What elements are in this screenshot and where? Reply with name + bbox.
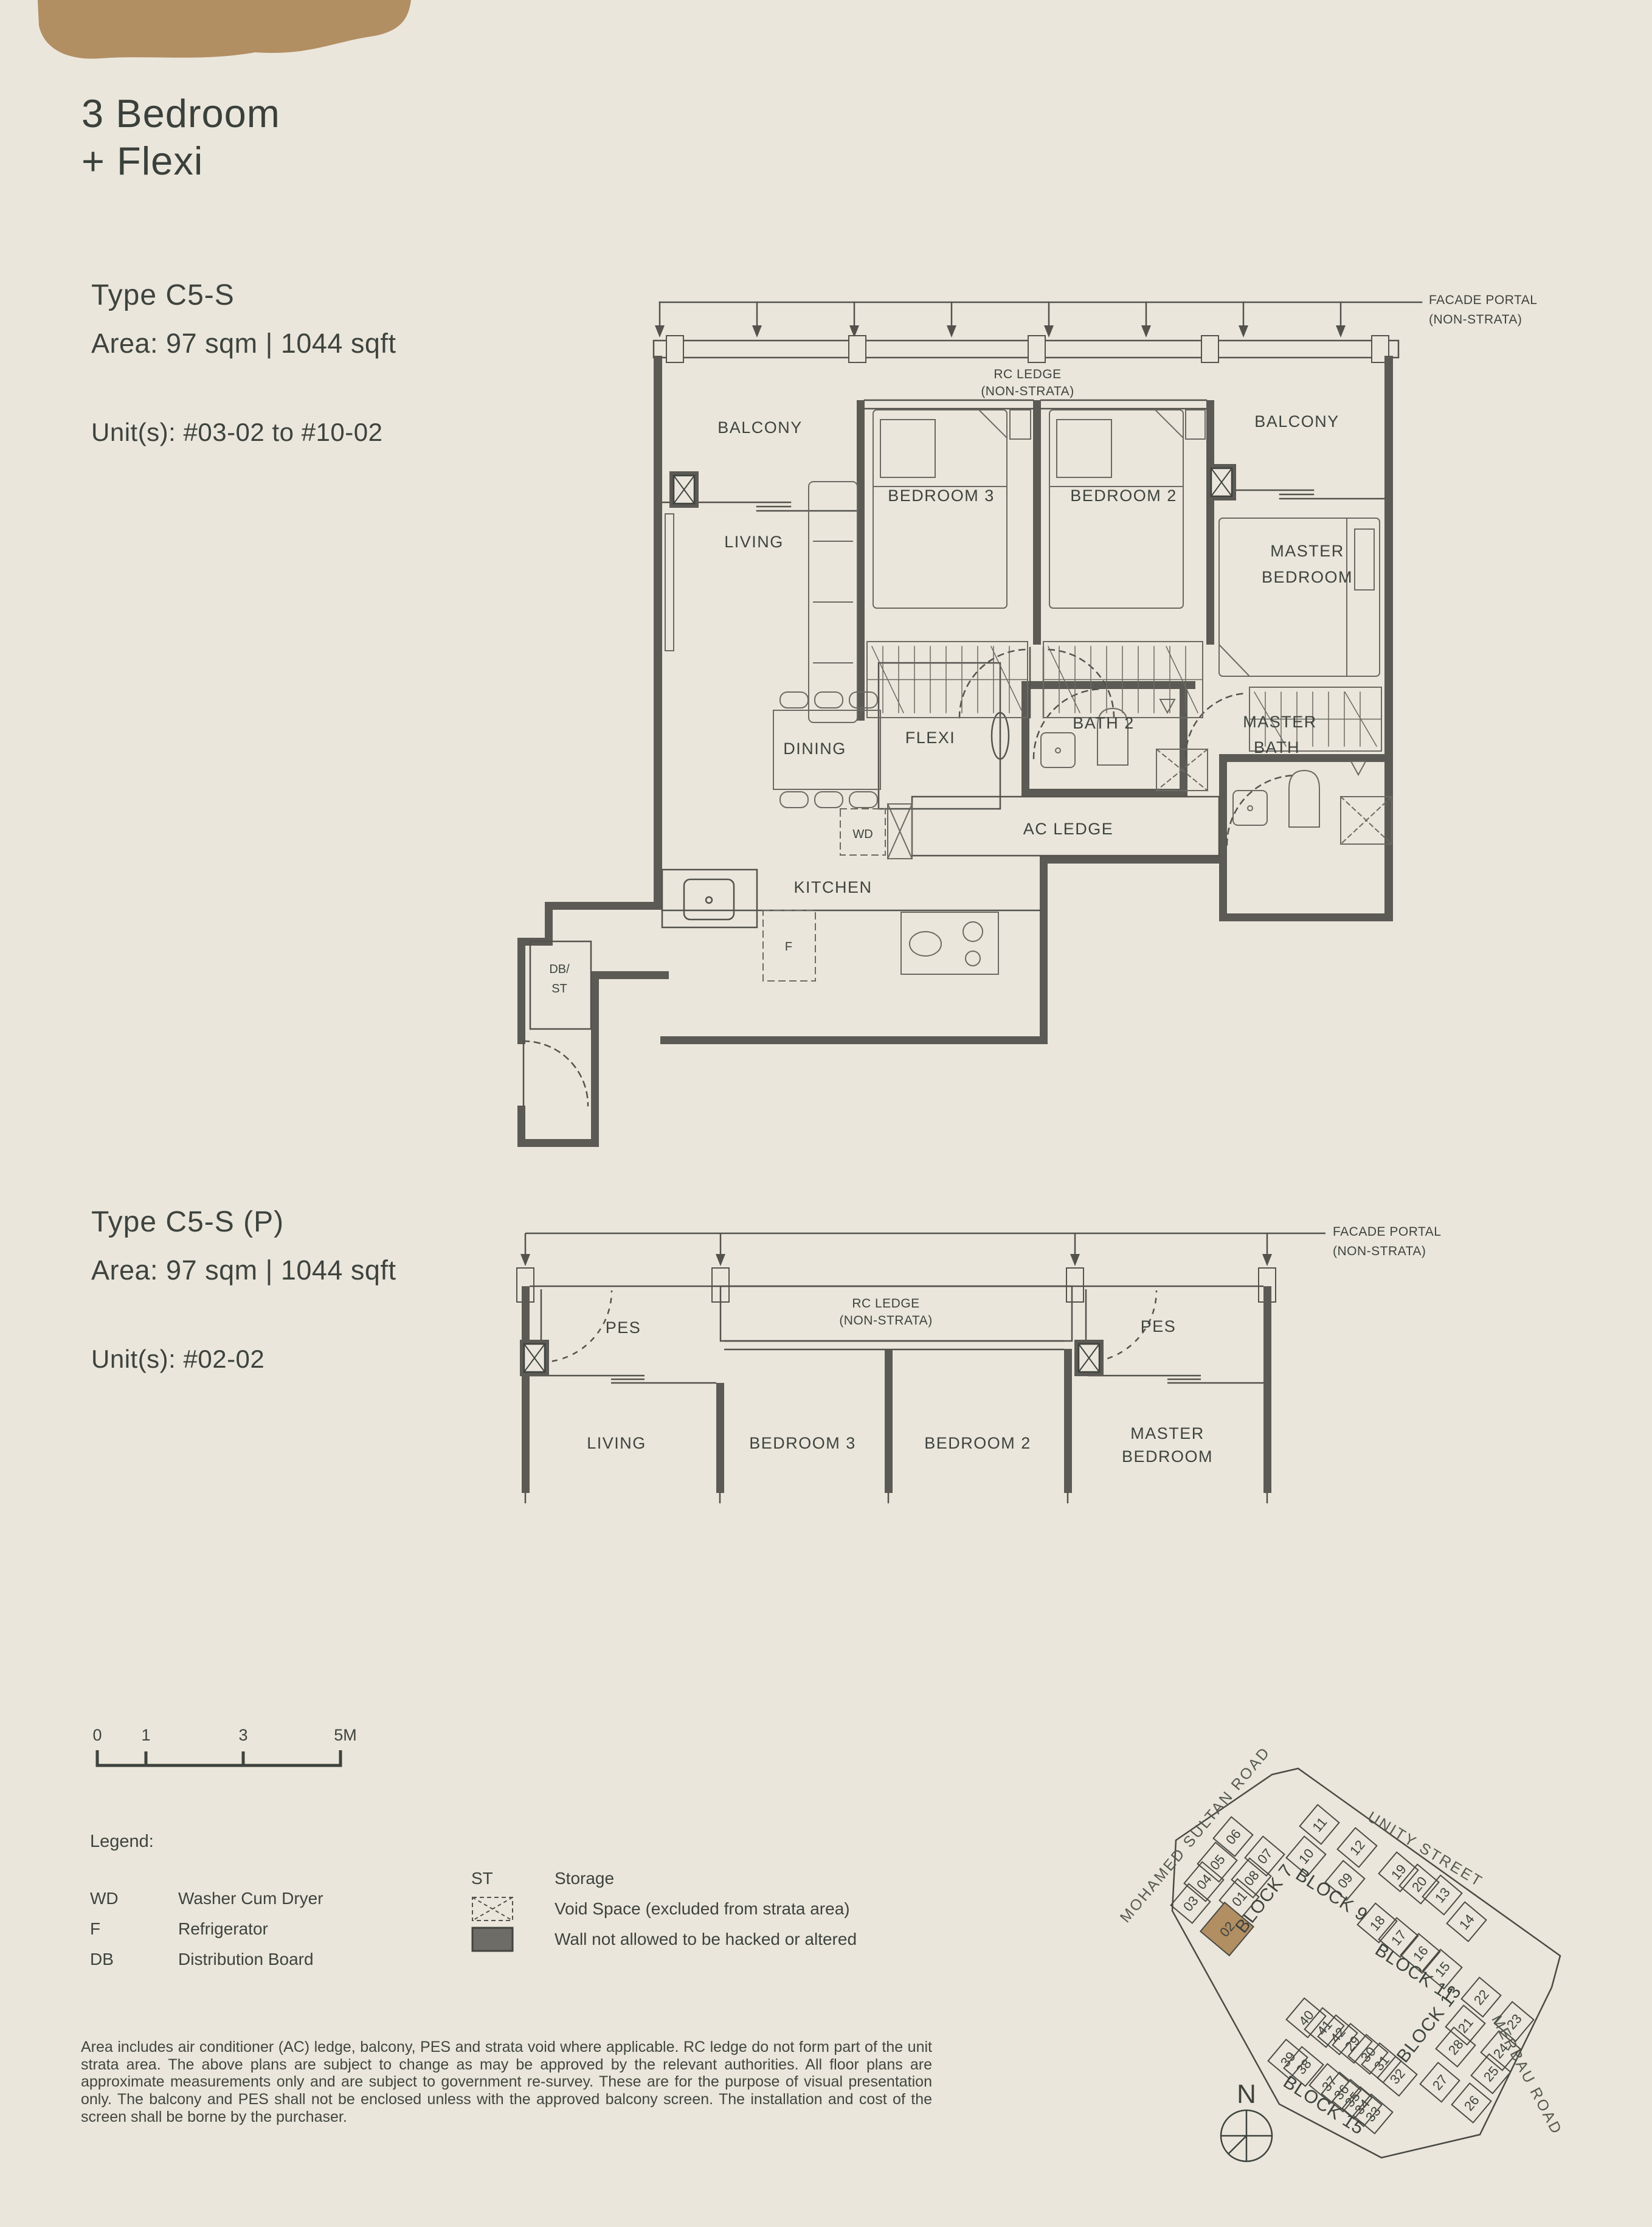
- plan1-rc-ledge-label2: (NON-STRATA): [981, 384, 1074, 398]
- plan2-room-labels: RC LEDGE (NON-STRATA) PES PES LIVING BED…: [587, 1297, 1213, 1466]
- label-st: ST: [551, 982, 567, 996]
- room-label-flexi: FLEXI: [905, 729, 956, 747]
- site-unit-number: 18: [1367, 1913, 1388, 1934]
- site-unit-number: 14: [1456, 1911, 1477, 1933]
- plan2-facade-portal-label: FACADE PORTAL: [1333, 1225, 1441, 1239]
- plan2-heading: Type C5-S (P): [91, 1205, 396, 1239]
- legend-desc-void: Void Space (excluded from strata area): [555, 1899, 850, 1919]
- facade-portal-arrows: [520, 1233, 1272, 1266]
- legend-row-wall: Wall not allowed to be hacked or altered: [471, 1924, 857, 1955]
- legend-desc-db: Distribution Board: [178, 1950, 314, 1969]
- floorplan-brochure-page: { "page": { "title_line1": "3 Bedroom", …: [0, 0, 1652, 2227]
- plan1-rc-ledge-label: RC LEDGE: [994, 367, 1061, 381]
- site-unit-number: 03: [1180, 1893, 1201, 1914]
- site-unit-number: 21: [1455, 2015, 1476, 2036]
- legend-desc-f: Refrigerator: [178, 1919, 268, 1939]
- legend-abbr-st: ST: [471, 1869, 555, 1888]
- bath2-fixtures: [1041, 699, 1175, 767]
- tv-console-icon: [665, 514, 674, 651]
- restricted-wall-symbol: [471, 1927, 514, 1952]
- plan2-info: Type C5-S (P) Area: 97 sqm | 1044 sqft U…: [91, 1205, 396, 1374]
- plan1-heading: Type C5-S: [91, 279, 396, 312]
- room-label-pes-left: PES: [606, 1318, 641, 1337]
- legend-desc-wd: Washer Cum Dryer: [178, 1889, 323, 1908]
- page-title: 3 Bedroom + Flexi: [81, 90, 280, 185]
- room-label-master-bath2: BATH: [1254, 738, 1300, 757]
- disclaimer-text: Area includes air conditioner (AC) ledge…: [81, 2038, 932, 2125]
- plan2-units: Unit(s): #02-02: [91, 1345, 396, 1374]
- site-map-road-labels: MOHAMED SULTAN ROADUNITY STREETMERBAU RO…: [1117, 1744, 1566, 2138]
- plan1-area: Area: 97 sqm | 1044 sqft: [91, 328, 396, 359]
- floor-plan-2: FACADE PORTAL (NON-STRATA): [517, 1225, 1441, 1503]
- side-table-icon: [1186, 410, 1205, 439]
- plan2-rc-ledge-label2: (NON-STRATA): [839, 1314, 932, 1328]
- plan2-rc-ledge-label: RC LEDGE: [852, 1297, 919, 1311]
- room-label-living-p2: LIVING: [587, 1434, 646, 1452]
- site-unit-number: 04: [1194, 1871, 1215, 1893]
- plan2-area: Area: 97 sqm | 1044 sqft: [91, 1255, 396, 1286]
- room-label-pes-right: PES: [1141, 1317, 1177, 1335]
- site-unit-number: 05: [1207, 1852, 1228, 1873]
- site-unit-number: 08: [1241, 1868, 1262, 1889]
- site-road-label: UNITY STREET: [1364, 1808, 1486, 1890]
- scale-tick-0: 0: [92, 1726, 102, 1744]
- scale-tick-3: 3: [238, 1726, 247, 1744]
- master-bath-fixtures: [1233, 761, 1366, 827]
- brush-stroke-decoration: [38, 0, 411, 59]
- legend: Legend: WD Washer Cum Dryer F Refrigerat…: [90, 1832, 323, 1975]
- room-label-master-bedroom: MASTER: [1270, 542, 1344, 560]
- site-unit-27: 27: [1420, 2063, 1460, 2102]
- plan2-facade-portal-label2: (NON-STRATA): [1333, 1244, 1426, 1258]
- page-title-line2: + Flexi: [81, 137, 280, 185]
- legend-row-db: DB Distribution Board: [90, 1944, 323, 1975]
- room-label-bath2: BATH 2: [1073, 714, 1135, 732]
- site-unit-number: 19: [1388, 1862, 1409, 1883]
- legend-abbr-db: DB: [90, 1950, 178, 1969]
- legend-row-wd: WD Washer Cum Dryer: [90, 1883, 323, 1914]
- site-unit-26: 26: [1452, 2083, 1491, 2123]
- room-label-living: LIVING: [724, 533, 784, 551]
- plan1-info: Type C5-S Area: 97 sqm | 1044 sqft Unit(…: [91, 279, 396, 447]
- label-f: F: [785, 940, 792, 954]
- scale-tick-5m: 5M: [334, 1726, 357, 1744]
- site-map: 0102030405060708091011121314151617181920…: [1117, 1744, 1566, 2161]
- site-unit-number: 32: [1387, 2066, 1408, 2087]
- label-wd: WD: [852, 828, 873, 841]
- ac-unit-boxes: [520, 1340, 1104, 1376]
- room-label-master-bath: MASTER: [1243, 713, 1317, 731]
- plan1-units: Unit(s): #03-02 to #10-02: [91, 418, 396, 447]
- site-unit-14: 14: [1447, 1902, 1487, 1942]
- site-unit-number: 28: [1445, 2037, 1467, 2058]
- room-label-bedroom3: BEDROOM 3: [888, 487, 995, 505]
- legend-column-2: ST Storage Void Space (excluded from str…: [471, 1863, 857, 1955]
- site-unit-number: 06: [1223, 1826, 1244, 1848]
- room-label-kitchen: KITCHEN: [793, 878, 872, 896]
- room-label-bedroom2-p2: BEDROOM 2: [924, 1434, 1031, 1452]
- room-label-master2-p2: BEDROOM: [1122, 1447, 1213, 1466]
- room-label-dining: DINING: [783, 739, 846, 758]
- site-map-units: 0102030405060708091011121314151617181920…: [1171, 1805, 1534, 2134]
- legend-row-f: F Refrigerator: [90, 1914, 323, 1944]
- room-label-master-bedroom2: BEDROOM: [1262, 568, 1353, 586]
- legend-abbr-wd: WD: [90, 1889, 178, 1908]
- scale-bar: [97, 1750, 340, 1765]
- room-label-master-p2: MASTER: [1130, 1424, 1204, 1443]
- site-unit-22: 22: [1462, 1978, 1501, 2017]
- legend-row-void: Void Space (excluded from strata area): [471, 1894, 857, 1924]
- room-label-bedroom2: BEDROOM 2: [1070, 487, 1177, 505]
- site-unit-28: 28: [1436, 2028, 1476, 2067]
- legend-desc-wall: Wall not allowed to be hacked or altered: [555, 1930, 857, 1949]
- scale-bar-labels: 0 1 3 5M: [92, 1726, 356, 1744]
- shower-icon-master-bath: [1341, 797, 1392, 844]
- page-title-line1: 3 Bedroom: [81, 90, 280, 137]
- legend-title: Legend:: [90, 1832, 323, 1852]
- plan1-facade-portal-label2: (NON-STRATA): [1429, 313, 1522, 327]
- site-unit-number: 10: [1296, 1846, 1317, 1867]
- plan1-facade-portal-label: FACADE PORTAL: [1429, 293, 1537, 307]
- floor-plan-1: FACADE PORTAL (NON-STRATA) RC LEDGE (NON…: [517, 293, 1537, 1147]
- room-label-ac-ledge: AC LEDGE: [1023, 820, 1114, 838]
- legend-desc-st: Storage: [555, 1869, 614, 1888]
- wall-pilaster-stubs: [666, 336, 1389, 362]
- side-table-icon: [1010, 410, 1031, 439]
- legend-row-st: ST Storage: [471, 1863, 857, 1894]
- room-label-balcony-left: BALCONY: [717, 418, 803, 437]
- void-panel-icon: [888, 804, 912, 859]
- site-unit-number: 11: [1309, 1815, 1330, 1835]
- scale-tick-1: 1: [141, 1726, 150, 1744]
- legend-abbr-f: F: [90, 1919, 178, 1939]
- room-label-balcony-right: BALCONY: [1254, 412, 1339, 431]
- compass-n-label: N: [1237, 2079, 1256, 2109]
- site-unit-number: 07: [1254, 1846, 1276, 1867]
- site-unit-number: 27: [1429, 2072, 1451, 2093]
- bed-icon-bedroom2: [1049, 410, 1183, 608]
- north-compass: [1221, 2110, 1272, 2161]
- room-label-bedroom3-p2: BEDROOM 3: [749, 1434, 856, 1452]
- void-space-symbol: [471, 1896, 514, 1922]
- label-db: DB/: [549, 963, 570, 976]
- site-unit-number: 22: [1471, 1987, 1492, 2008]
- bed-icon-bedroom3: [873, 410, 1007, 608]
- facade-portal-arrows: [655, 302, 1346, 338]
- stove-icon: [901, 912, 998, 974]
- site-unit-number: 26: [1461, 2093, 1482, 2114]
- site-unit-number: 12: [1347, 1837, 1368, 1858]
- site-unit-06: 06: [1214, 1817, 1253, 1857]
